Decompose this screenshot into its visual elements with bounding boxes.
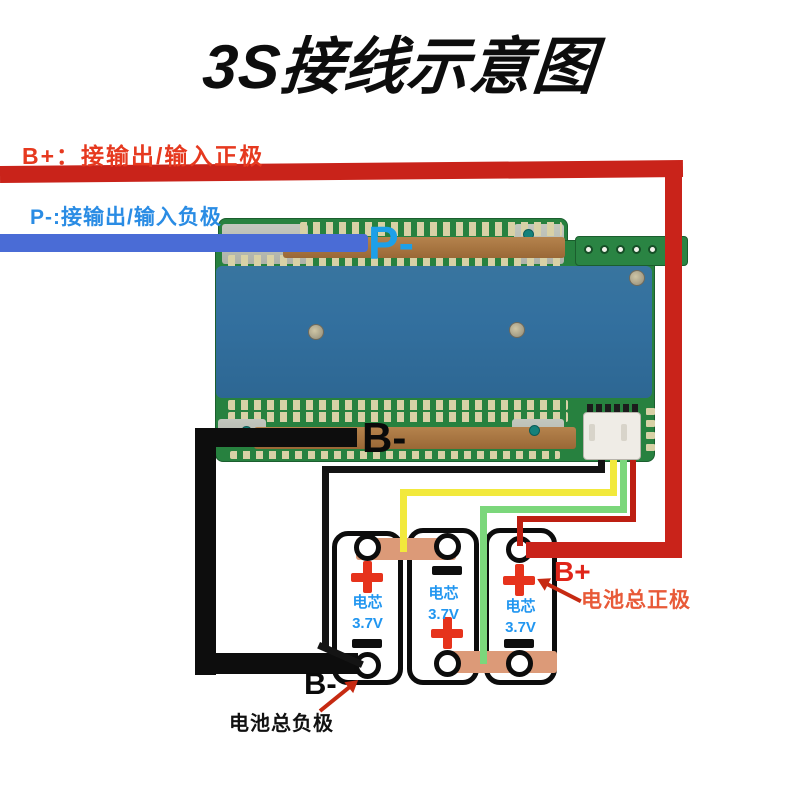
cell2-minus-icon xyxy=(432,566,462,575)
cell2-voltage: 3.7V xyxy=(408,604,479,625)
board-pad-hole xyxy=(648,245,657,254)
balance-wire-red xyxy=(517,516,636,522)
board-pad-hole xyxy=(632,245,641,254)
cell2-label: 电芯 3.7V xyxy=(408,583,479,625)
solder-pad xyxy=(646,420,655,427)
cell1-minus-icon xyxy=(352,639,382,648)
screw-icon xyxy=(509,322,525,338)
p-minus-wire-label: P-:接输出/输入负极 xyxy=(30,201,222,231)
cell1-voltage: 3.7V xyxy=(332,613,403,634)
balance-wire-green xyxy=(620,455,627,512)
connector-slot xyxy=(621,424,627,441)
b-minus-wire-vertical xyxy=(195,428,216,675)
cell3-bottom-terminal xyxy=(506,650,533,677)
board-pad-hole xyxy=(616,245,625,254)
balance-wire-yellow xyxy=(400,489,617,496)
cell1-plus-icon xyxy=(351,561,383,593)
solder-pad xyxy=(646,432,655,439)
cell1-name: 电芯 xyxy=(332,592,403,613)
balance-wire-green xyxy=(480,506,487,664)
wiring-diagram: 3S接线示意图 B+：接输出/输入正极 P-:接输出/输入负极 P- B- xyxy=(0,0,800,800)
cell2-bottom-terminal xyxy=(434,650,461,677)
balance-wire-yellow xyxy=(400,489,407,552)
p-minus-pad-label: P- xyxy=(368,216,414,270)
balance-wire-black xyxy=(322,466,329,648)
p-minus-wire xyxy=(0,234,368,252)
board-pad-hole xyxy=(600,245,609,254)
solder-pad xyxy=(646,444,655,451)
screw-icon xyxy=(308,324,324,340)
connector-slot xyxy=(589,424,595,441)
b-plus-wire-label: B+：接输出/输入正极 xyxy=(22,137,264,171)
cell3-label: 电芯 3.7V xyxy=(485,596,556,638)
cell1-label: 电芯 3.7V xyxy=(332,592,403,634)
balance-wire-green xyxy=(480,506,627,513)
b-plus-wire-vertical xyxy=(665,164,682,558)
balance-wire-red xyxy=(517,516,523,546)
battery-positive-annotation: 电池总正极 xyxy=(581,584,691,614)
cell3-minus-icon xyxy=(504,639,534,648)
nickel-strip-bottom xyxy=(447,651,557,673)
b-plus-wire-to-cell xyxy=(526,542,682,558)
board-mount-hole xyxy=(529,425,540,436)
b-minus-wire-horizontal xyxy=(195,428,357,447)
b-minus-pad-label: B- xyxy=(362,414,406,462)
page-title: 3S接线示意图 xyxy=(0,16,800,106)
screw-icon xyxy=(629,270,645,286)
solder-pad-row xyxy=(228,400,568,410)
balance-wire-black xyxy=(322,466,605,473)
b-minus-annotation: B- xyxy=(304,666,337,702)
cell3-plus-icon xyxy=(503,564,535,596)
board-pad-hole xyxy=(584,245,593,254)
cell3-name: 电芯 xyxy=(485,596,556,617)
cell2-top-terminal xyxy=(434,533,461,560)
solder-pad xyxy=(646,408,655,415)
cell3-voltage: 3.7V xyxy=(485,617,556,638)
cell2-name: 电芯 xyxy=(408,583,479,604)
balance-wire-red xyxy=(630,455,636,522)
heatsink-plate xyxy=(216,266,652,398)
cell1-top-terminal xyxy=(354,534,381,561)
battery-negative-annotation: 电池总负极 xyxy=(229,707,334,736)
